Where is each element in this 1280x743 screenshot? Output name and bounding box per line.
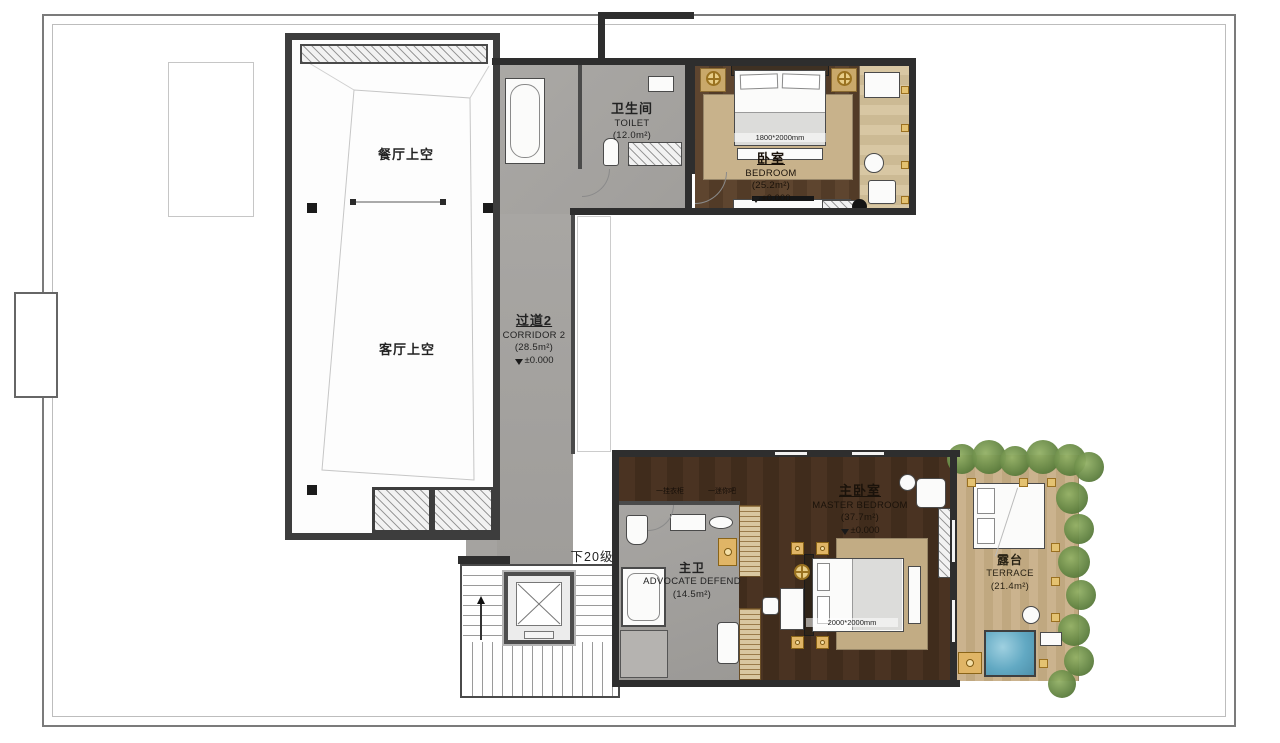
pillow [817, 563, 830, 591]
ceiling-light-icon [706, 71, 721, 86]
floor-lamp [899, 474, 916, 491]
wall [458, 556, 510, 564]
window-slit [852, 452, 884, 455]
deck-light [967, 478, 976, 487]
balcony-desk [864, 72, 900, 98]
basin-icon [724, 548, 732, 556]
plant [1066, 580, 1096, 610]
window-slit [952, 520, 955, 562]
stair-direction-arrow [477, 596, 485, 604]
stair-flight-bottom [463, 642, 617, 696]
bed-bench [908, 566, 921, 624]
window-slit [952, 600, 955, 642]
wall [688, 58, 916, 66]
lit-basin [718, 538, 737, 566]
glass-railing-panel [432, 487, 494, 533]
roof-outline [168, 62, 254, 217]
column [483, 203, 493, 213]
window-slit [775, 452, 807, 455]
pillow [977, 488, 995, 514]
bed-size-label: 2000*2000mm [806, 618, 898, 627]
wall [571, 214, 575, 454]
annotation-note: 一迷你吧 [708, 486, 736, 496]
bathtub-basin [510, 84, 540, 158]
light-icon [820, 546, 825, 551]
column [307, 485, 317, 495]
sink [709, 516, 733, 529]
wall-sink [648, 76, 674, 92]
atrium-edge-line [577, 216, 611, 452]
tv [752, 196, 814, 201]
deck-light [1051, 613, 1060, 622]
column [307, 203, 317, 213]
desk-chair [762, 597, 779, 615]
deck-light [1047, 478, 1056, 487]
wardrobe [739, 608, 761, 680]
pillow [977, 518, 995, 544]
plant [1056, 482, 1088, 514]
wall [492, 58, 694, 65]
shower [620, 630, 668, 678]
light-icon [795, 640, 800, 645]
vanity-cabinet [670, 514, 706, 531]
deck-light [1019, 478, 1028, 487]
plant [1048, 670, 1076, 698]
spotlight [791, 542, 804, 555]
desk [780, 588, 804, 630]
plant [1074, 452, 1104, 482]
ceiling-light-icon [837, 71, 852, 86]
balcony-table [864, 153, 884, 173]
deck-light [901, 161, 909, 169]
floor-plan: 餐厅上空 客厅上空 卫生间 TOILET (12.0m²) 1 过道2 CORR… [0, 0, 1280, 743]
armchair [916, 478, 946, 508]
bidet-fixture [717, 622, 739, 664]
deck-light [901, 86, 909, 94]
plant [1064, 514, 1094, 544]
elevator-door [524, 631, 554, 639]
plant [1058, 614, 1090, 646]
pillow [782, 73, 821, 89]
spa-pool [984, 630, 1036, 677]
chandelier-icon [794, 564, 810, 580]
wall [598, 12, 605, 64]
spotlight [816, 636, 829, 649]
spa-side-table [1040, 632, 1062, 646]
wall [950, 450, 957, 687]
wall [612, 450, 619, 687]
bed-size-label: 1800*2000mm [734, 133, 826, 142]
void-guide-lines [292, 40, 494, 534]
spotlight [791, 636, 804, 649]
wall [688, 58, 695, 174]
glass-railing-panel [372, 487, 432, 533]
deck-light [1039, 659, 1048, 668]
double-sink-vanity [628, 142, 682, 166]
balcony-chair [868, 180, 896, 204]
plant [1058, 546, 1090, 578]
wall [909, 58, 916, 215]
light-icon [820, 640, 825, 645]
wall [578, 64, 582, 169]
corridor-floor [497, 214, 573, 564]
wall [598, 12, 694, 19]
wall [619, 501, 740, 505]
bed-bench [737, 148, 823, 160]
wardrobe [739, 505, 761, 577]
pillow [740, 73, 779, 89]
deck-light [901, 196, 909, 204]
bathtub-basin [627, 573, 660, 621]
deck-light [901, 124, 909, 132]
terrace-table [1022, 606, 1040, 624]
light-icon [966, 659, 974, 667]
skylight-panel [300, 44, 488, 64]
wall [612, 680, 960, 687]
toilet-fixture [603, 138, 619, 166]
elevator-x-icon [516, 582, 562, 626]
annotation-note: 一挂衣柜 [656, 486, 684, 496]
deck-light [1051, 543, 1060, 552]
stair-direction-line [480, 604, 482, 640]
light-icon [795, 546, 800, 551]
deck-light [1051, 577, 1060, 586]
terrace-light-pad [958, 652, 982, 674]
left-balcony-box [14, 292, 58, 398]
wall [688, 208, 916, 215]
toilet-fixture [626, 515, 648, 545]
spotlight [816, 542, 829, 555]
wall [570, 208, 692, 215]
